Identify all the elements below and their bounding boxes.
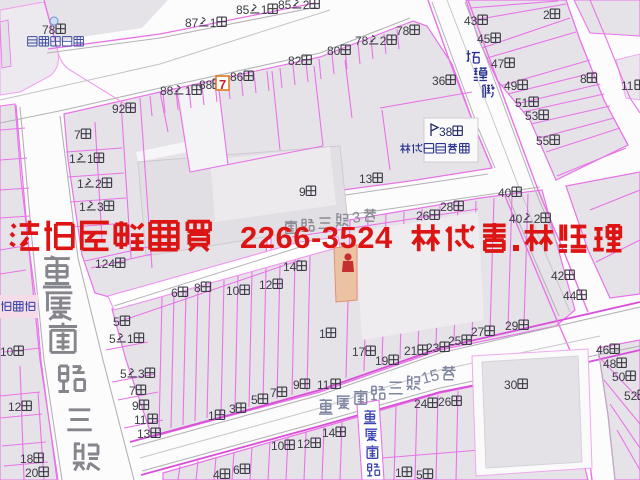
svg-text:80: 80 xyxy=(327,44,341,58)
svg-text:82: 82 xyxy=(288,54,302,68)
svg-text:40: 40 xyxy=(509,212,523,226)
svg-text:46: 46 xyxy=(596,343,610,357)
svg-text:48: 48 xyxy=(603,357,617,371)
svg-text:78: 78 xyxy=(355,34,369,48)
svg-text:50: 50 xyxy=(612,370,626,384)
svg-text:2266-3524: 2266-3524 xyxy=(240,220,393,255)
svg-text:44: 44 xyxy=(563,289,577,303)
svg-text:53: 53 xyxy=(525,109,539,123)
svg-text:9: 9 xyxy=(299,185,306,199)
svg-text:3: 3 xyxy=(138,367,145,381)
svg-text:2: 2 xyxy=(303,0,310,12)
svg-text:1: 1 xyxy=(261,3,268,17)
svg-text:5: 5 xyxy=(251,393,258,407)
svg-text:7: 7 xyxy=(74,128,81,142)
svg-text:1: 1 xyxy=(69,152,76,166)
svg-text:18: 18 xyxy=(20,452,34,466)
svg-text:85: 85 xyxy=(278,0,292,12)
svg-text:2: 2 xyxy=(380,34,387,48)
svg-text:12: 12 xyxy=(259,278,273,292)
svg-text:6: 6 xyxy=(233,463,240,477)
svg-text:21: 21 xyxy=(404,344,418,358)
svg-text:7: 7 xyxy=(219,77,226,92)
svg-text:14: 14 xyxy=(322,426,336,440)
svg-text:1: 1 xyxy=(127,332,134,346)
svg-text:1: 1 xyxy=(79,200,86,214)
svg-text:5: 5 xyxy=(120,367,127,381)
svg-text:5: 5 xyxy=(109,332,116,346)
svg-text:88: 88 xyxy=(199,78,213,92)
svg-text:1: 1 xyxy=(87,152,94,166)
svg-text:12: 12 xyxy=(8,400,22,414)
svg-text:124: 124 xyxy=(95,257,115,271)
svg-text:88: 88 xyxy=(160,84,174,98)
svg-text:1: 1 xyxy=(185,84,192,98)
svg-text:45: 45 xyxy=(477,32,491,46)
svg-text:13: 13 xyxy=(137,427,151,441)
svg-text:20: 20 xyxy=(25,466,39,480)
svg-text:26: 26 xyxy=(416,209,430,223)
svg-text:1: 1 xyxy=(395,466,402,480)
svg-text:28: 28 xyxy=(440,200,454,214)
svg-text:7: 7 xyxy=(129,384,136,398)
svg-text:6: 6 xyxy=(171,286,178,300)
svg-text:30: 30 xyxy=(504,378,518,392)
svg-text:36: 36 xyxy=(432,74,446,88)
svg-text:25: 25 xyxy=(448,334,462,348)
svg-text:7: 7 xyxy=(270,386,277,400)
svg-text:51: 51 xyxy=(515,96,529,110)
svg-text:5: 5 xyxy=(416,468,423,480)
svg-text:5: 5 xyxy=(113,315,120,329)
svg-text:19: 19 xyxy=(375,354,389,368)
svg-text:10: 10 xyxy=(0,345,14,359)
svg-text:38: 38 xyxy=(439,125,453,139)
svg-text:17: 17 xyxy=(352,345,366,359)
svg-text:26: 26 xyxy=(438,395,452,409)
svg-text:13: 13 xyxy=(359,172,373,186)
svg-text:8: 8 xyxy=(580,72,587,86)
svg-text:3: 3 xyxy=(97,200,104,214)
svg-text:47: 47 xyxy=(491,57,505,71)
svg-text:1: 1 xyxy=(319,327,326,341)
svg-text:55: 55 xyxy=(536,134,550,148)
svg-text:10: 10 xyxy=(226,284,240,298)
svg-text:8: 8 xyxy=(194,281,201,295)
svg-text:23: 23 xyxy=(426,341,440,355)
svg-text:2: 2 xyxy=(95,177,102,191)
svg-text:27: 27 xyxy=(471,325,485,339)
svg-text:42: 42 xyxy=(551,269,565,283)
svg-text:10: 10 xyxy=(271,439,285,453)
svg-text:1: 1 xyxy=(77,177,84,191)
svg-text:49: 49 xyxy=(504,79,518,93)
svg-text:2: 2 xyxy=(534,212,541,226)
svg-text:9: 9 xyxy=(132,399,139,413)
svg-text:11: 11 xyxy=(621,79,634,93)
svg-text:12: 12 xyxy=(297,437,311,451)
svg-text:2: 2 xyxy=(543,8,550,22)
svg-text:86: 86 xyxy=(230,70,244,84)
svg-text:85: 85 xyxy=(236,3,250,17)
svg-text:78: 78 xyxy=(396,24,410,38)
svg-text:3: 3 xyxy=(229,402,236,416)
svg-text:29: 29 xyxy=(505,319,519,333)
svg-text:92: 92 xyxy=(112,102,126,116)
svg-text:4: 4 xyxy=(213,468,220,480)
svg-text:14: 14 xyxy=(283,260,297,274)
svg-text:9: 9 xyxy=(293,378,300,392)
svg-text:11: 11 xyxy=(134,413,147,427)
svg-text:11: 11 xyxy=(317,378,330,392)
svg-text:1: 1 xyxy=(210,16,217,30)
svg-text:40: 40 xyxy=(498,186,512,200)
svg-text:1: 1 xyxy=(208,409,215,423)
svg-text:24: 24 xyxy=(414,397,428,411)
svg-text:43: 43 xyxy=(464,14,478,28)
svg-text:87: 87 xyxy=(185,16,199,30)
svg-text:52: 52 xyxy=(624,389,638,403)
